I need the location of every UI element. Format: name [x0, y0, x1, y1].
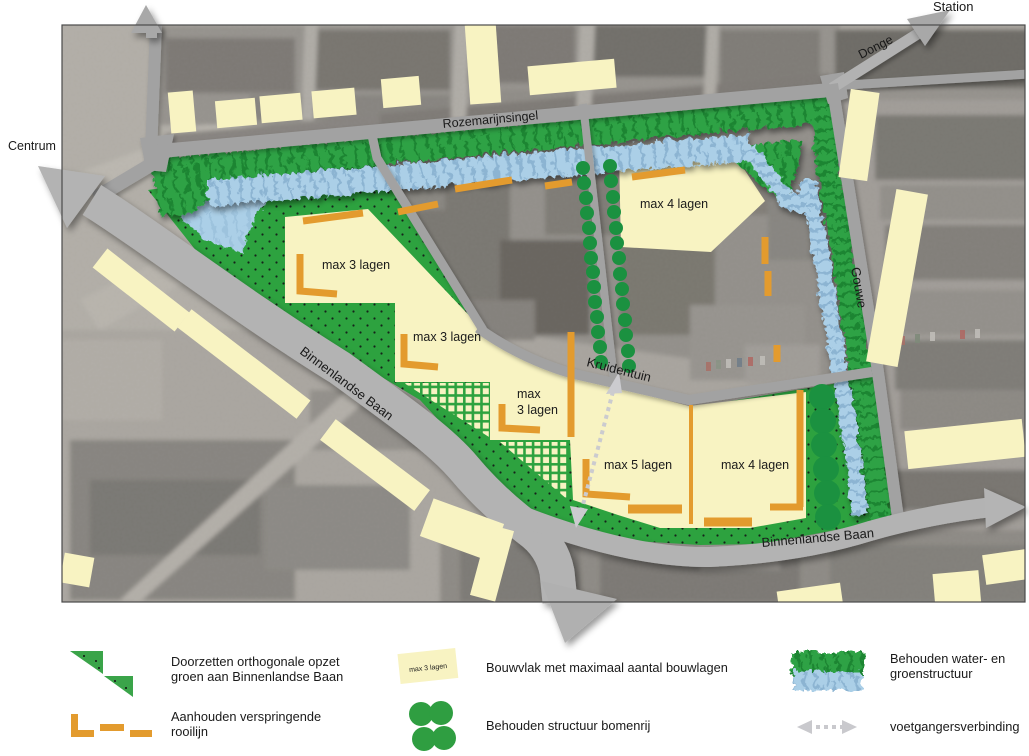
svg-text:Behouden water- en: Behouden water- en	[890, 651, 1005, 666]
svg-text:groenstructuur: groenstructuur	[890, 666, 973, 681]
svg-text:max 4 lagen: max 4 lagen	[640, 197, 708, 211]
svg-text:Aanhouden verspringende: Aanhouden verspringende	[171, 709, 321, 724]
svg-text:max 4 lagen: max 4 lagen	[721, 458, 789, 472]
svg-text:max 5 lagen: max 5 lagen	[604, 458, 672, 472]
svg-text:max 3 lagen: max 3 lagen	[413, 330, 481, 344]
svg-text:groen aan Binnenlandse Baan: groen aan Binnenlandse Baan	[171, 669, 343, 684]
svg-text:max 3 lagen: max 3 lagen	[322, 258, 390, 272]
svg-text:voetgangersverbinding: voetgangersverbinding	[890, 719, 1019, 734]
svg-text:rooilijn: rooilijn	[171, 724, 208, 739]
svg-text:Doorzetten orthogonale opzet: Doorzetten orthogonale opzet	[171, 654, 340, 669]
svg-text:max: max	[517, 387, 541, 401]
svg-text:Bouwvlak met maximaal aantal b: Bouwvlak met maximaal aantal bouwlagen	[486, 660, 728, 675]
svg-text:3 lagen: 3 lagen	[517, 403, 558, 417]
svg-text:Centrum: Centrum	[8, 139, 56, 153]
svg-text:Station: Station	[933, 0, 973, 14]
svg-text:Behouden structuur bomenrij: Behouden structuur bomenrij	[486, 718, 650, 733]
